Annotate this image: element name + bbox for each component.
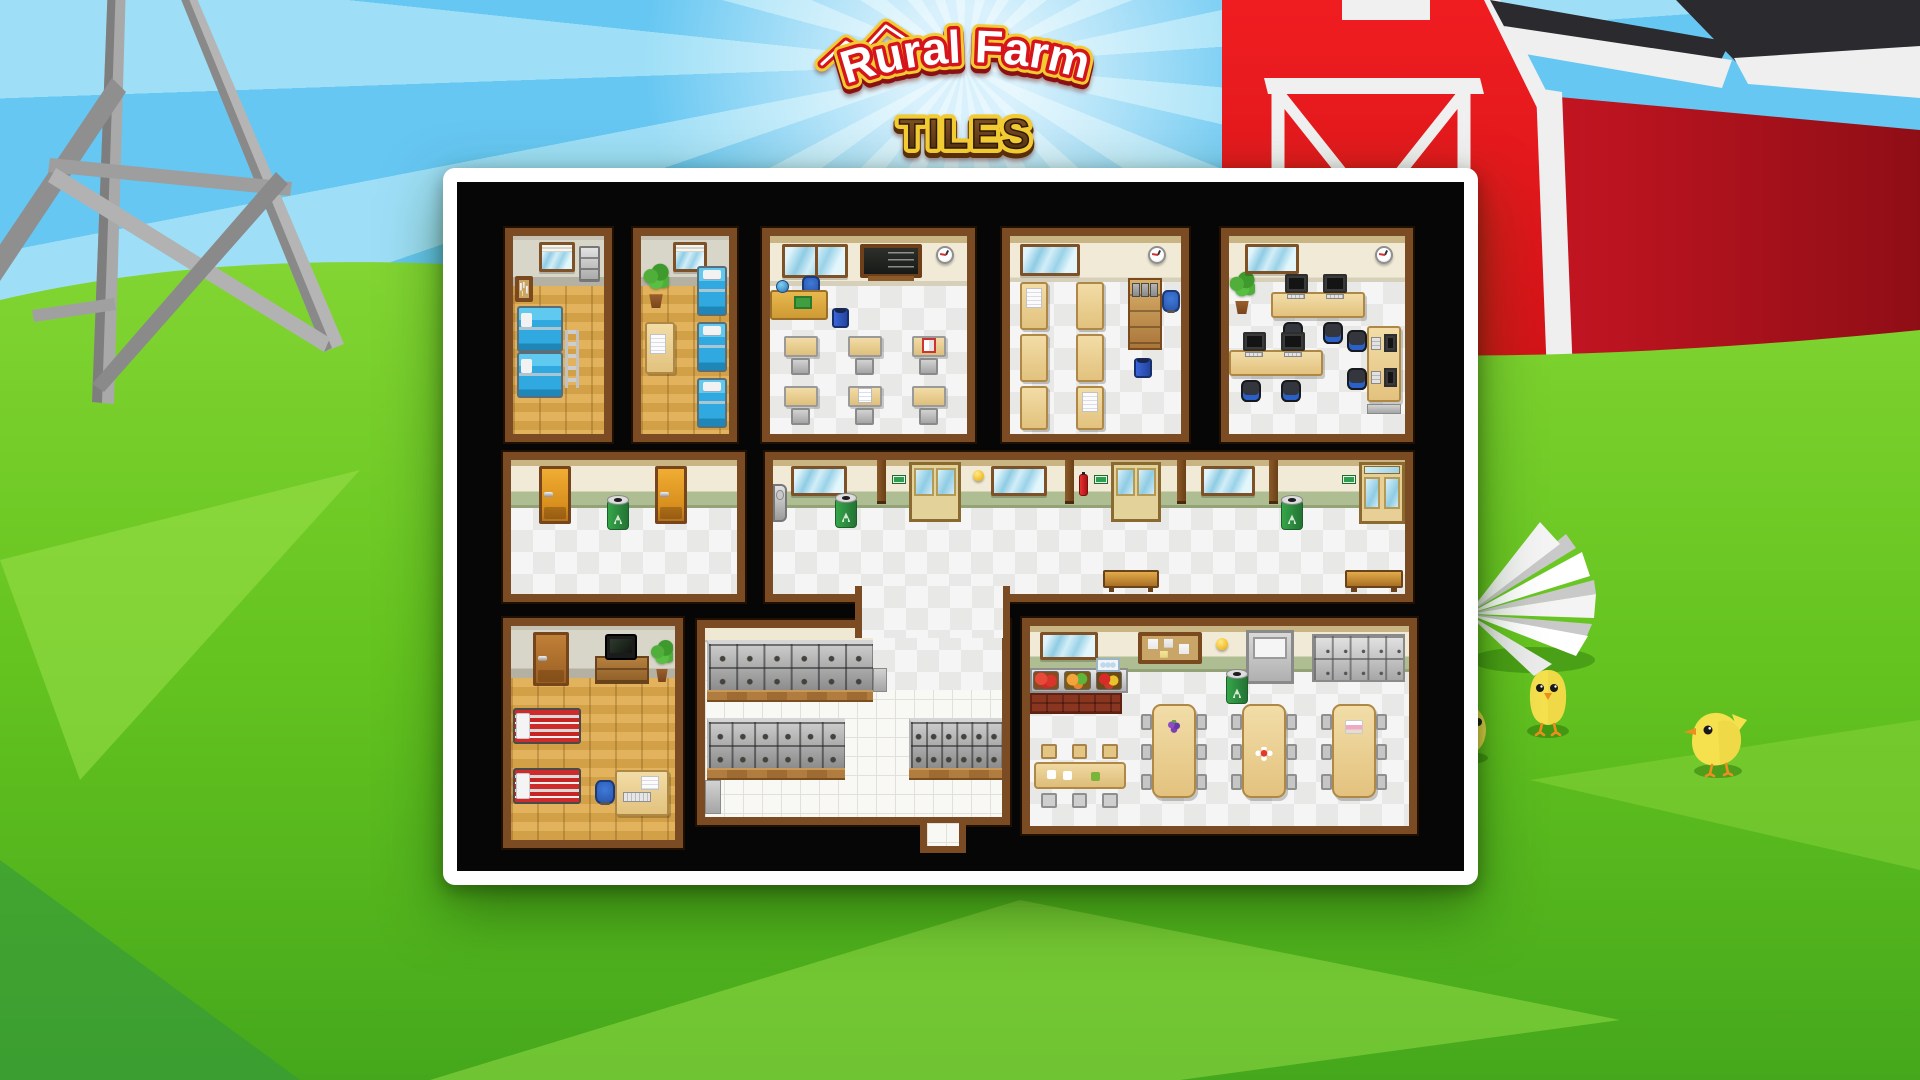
step: [705, 780, 721, 814]
bed: [513, 708, 581, 744]
water-fountain: [773, 484, 787, 522]
double-door: [1111, 462, 1161, 522]
papers: [1026, 288, 1042, 308]
floor-mat: [1367, 404, 1401, 414]
papers: [650, 334, 666, 354]
student-desk: [848, 386, 882, 426]
room-office: [1002, 228, 1189, 442]
window: [1020, 244, 1080, 276]
exit-sign: [1343, 476, 1355, 483]
potted-plant: [643, 262, 669, 308]
shoe-locker-shelf: [707, 718, 845, 768]
game-logo: Rural Farm Rural Farm Rural Farm Rural F…: [788, 4, 1144, 162]
dining-table: [1242, 704, 1286, 798]
lockers: [1312, 634, 1405, 682]
room-dorm-b: [633, 228, 737, 442]
keyboard: [623, 792, 651, 802]
bunk-bed: [517, 306, 563, 352]
step: [873, 668, 887, 692]
bulletin-board: [1138, 632, 1202, 664]
ladder: [565, 330, 579, 388]
student-desk: [848, 336, 882, 376]
trash-bin: [832, 308, 849, 328]
student-desk: [912, 386, 946, 426]
computer-desk: [1367, 326, 1401, 402]
chalkboard: [860, 244, 922, 278]
window: [1040, 632, 1098, 660]
double-door: [909, 462, 961, 522]
entrance-stub: [920, 823, 966, 853]
tile-map: [457, 182, 1464, 871]
office-chair: [595, 780, 615, 804]
desk-chair: [1347, 330, 1367, 352]
room-classroom: [762, 228, 975, 442]
exit-sign: [1095, 476, 1107, 483]
shoe-locker-shelf: [707, 640, 873, 690]
potted-plant: [1229, 270, 1255, 314]
small-table: [1034, 744, 1126, 808]
tv: [605, 634, 637, 660]
window: [539, 242, 575, 272]
room-shoe-lockers: [697, 620, 1010, 825]
wall-lamp: [1216, 638, 1228, 650]
shoe-locker-shelf: [909, 718, 1002, 768]
milk-crate: [1096, 658, 1120, 672]
room-cafeteria: [1022, 618, 1417, 834]
potted-plant: [651, 638, 673, 682]
bench: [1345, 570, 1403, 588]
recycle-bin: [607, 500, 629, 530]
cabinet: [1128, 278, 1162, 350]
bunk-bed: [697, 322, 727, 372]
wall-pillar: [1177, 460, 1186, 504]
wall-clock: [1375, 246, 1393, 264]
student-desk: [784, 386, 818, 426]
bench: [1103, 570, 1159, 588]
wall-clock: [1148, 246, 1166, 264]
fire-extinguisher: [1079, 474, 1088, 496]
computer-desk: [1271, 292, 1365, 318]
wall-lamp: [973, 470, 984, 481]
bulletin-board: [515, 276, 533, 302]
window: [1201, 466, 1255, 496]
wall-pillar: [1065, 460, 1074, 504]
teacher-desk: [770, 290, 828, 320]
desk: [1076, 282, 1104, 330]
bed: [513, 768, 581, 804]
bunk-bed: [517, 352, 563, 398]
recycle-bin: [1281, 500, 1303, 530]
room-dorm-a: [505, 228, 612, 442]
wood-ledge: [707, 690, 873, 702]
desk-chair: [1347, 368, 1367, 390]
desk-chair: [1323, 322, 1343, 344]
papers: [1082, 392, 1098, 412]
dining-table: [1152, 704, 1196, 798]
file-cabinet: [579, 246, 600, 282]
wall-pillar: [1269, 460, 1278, 504]
wall-clock: [936, 246, 954, 264]
room-dorm-c: [503, 618, 683, 848]
hall-connector: [855, 586, 1010, 638]
office-chair: [1162, 290, 1180, 312]
room-computer-lab: [1221, 228, 1413, 442]
tileset-panel: [443, 168, 1478, 885]
room-hall-main: [765, 452, 1413, 602]
door: [655, 466, 687, 524]
recycle-bin: [1226, 674, 1248, 704]
window: [991, 466, 1047, 496]
logo-subtitle: TILES: [899, 110, 1033, 157]
student-desk: [784, 336, 818, 376]
desk-chair: [1241, 380, 1261, 402]
dining-table: [1332, 704, 1376, 798]
door: [539, 466, 571, 524]
wood-ledge: [707, 768, 845, 780]
water-tower: [0, 0, 372, 422]
recycle-bin: [835, 498, 857, 528]
papers: [641, 776, 659, 790]
desk: [1020, 334, 1048, 382]
student-desk: [912, 336, 946, 376]
bunk-bed: [697, 378, 727, 428]
desk: [1076, 334, 1104, 382]
computer-desk: [1229, 350, 1323, 376]
serving-counter: [1030, 668, 1128, 716]
desk: [1020, 386, 1048, 430]
window: [791, 466, 847, 496]
exit-sign: [893, 476, 905, 483]
window: [782, 244, 848, 278]
glass-door: [1359, 462, 1405, 524]
room-hall-west: [503, 452, 745, 602]
wall-pillar: [877, 460, 886, 504]
window: [1245, 244, 1299, 274]
trash-bin: [1134, 358, 1152, 378]
room-floor: [773, 508, 1405, 594]
door: [533, 632, 569, 686]
room-wall: [773, 460, 1405, 508]
chick: [1520, 660, 1576, 740]
desk-chair: [1281, 380, 1301, 402]
wood-ledge: [909, 768, 1002, 780]
bunk-bed: [697, 266, 727, 316]
metal-door: [1246, 630, 1294, 684]
stage: Rural Farm Rural Farm Rural Farm Rural F…: [0, 0, 1920, 1080]
dresser: [595, 656, 649, 684]
chick: [1684, 700, 1748, 780]
